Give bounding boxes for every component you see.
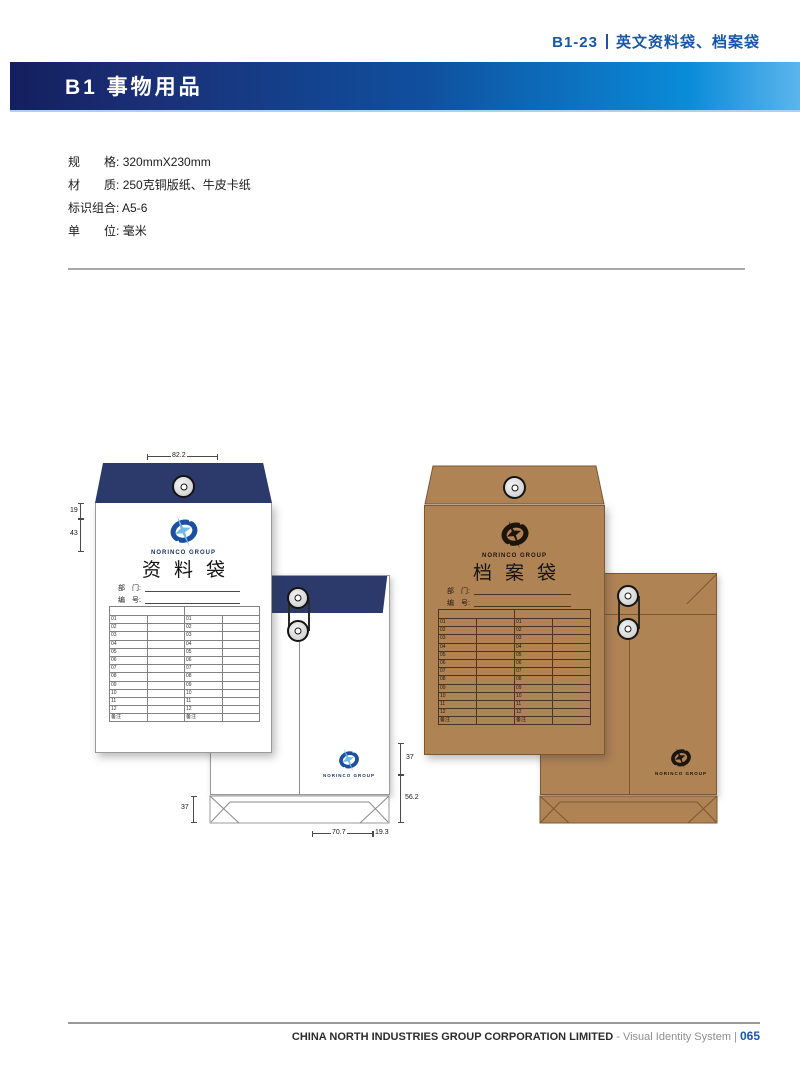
- corner-fold-line: [686, 574, 716, 604]
- index-table-body: 0101020203030404050506060707080809091010…: [110, 616, 260, 722]
- index-table-row: 0404: [439, 643, 591, 651]
- dim-label-bottom-outer: 19.3: [374, 829, 390, 837]
- eyelet-button-icon: [617, 618, 639, 640]
- row-number-cell: 04: [439, 643, 477, 651]
- row-blank-cell: [147, 697, 185, 705]
- row-blank-cell: [553, 668, 591, 676]
- dim-line: [400, 775, 401, 823]
- row-blank-cell: [553, 717, 591, 725]
- index-table-row: 0505: [439, 651, 591, 659]
- eyelet-button-icon: [617, 585, 639, 607]
- field-rule: [145, 591, 240, 592]
- row-number-cell: 07: [185, 665, 223, 673]
- index-table-row: 0101: [439, 619, 591, 627]
- row-blank-cell: [222, 673, 260, 681]
- spec-label: 标识组合:: [68, 197, 119, 220]
- norinco-logo-back: NORINCO GROUP: [314, 748, 384, 778]
- dim-line: [80, 519, 81, 552]
- row-blank-cell: [477, 668, 515, 676]
- row-blank-cell: [477, 717, 515, 725]
- row-blank-cell: [553, 659, 591, 667]
- row-number-cell: 01: [185, 616, 223, 624]
- row-blank-cell: [553, 651, 591, 659]
- kraft-envelope-front: NORINCO GROUP 档案袋 部 门: 编 号: 010102020303…: [424, 465, 605, 755]
- row-blank-cell: [222, 648, 260, 656]
- row-blank-cell: [553, 700, 591, 708]
- row-number-cell: 03: [110, 632, 148, 640]
- row-number-cell: 备注: [110, 714, 148, 722]
- norinco-logo-icon: [334, 748, 364, 773]
- row-blank-cell: [222, 624, 260, 632]
- dim-label-bottom-flap: 37: [180, 804, 190, 812]
- index-table-row: 1111: [439, 700, 591, 708]
- index-table-row: 1212: [439, 709, 591, 717]
- row-blank-cell: [477, 635, 515, 643]
- row-blank-cell: [222, 689, 260, 697]
- row-number-cell: 05: [185, 648, 223, 656]
- spec-row: 材 质: 250克铜版纸、牛皮卡纸: [68, 174, 251, 197]
- dim-label-left-upper: 19: [69, 507, 79, 515]
- spec-value: A5-6: [122, 201, 147, 215]
- brand-text: NORINCO GROUP: [646, 771, 716, 776]
- row-number-cell: 11: [185, 697, 223, 705]
- bottom-gusset-icon: [209, 795, 390, 824]
- row-number-cell: 05: [515, 651, 553, 659]
- row-blank-cell: [147, 706, 185, 714]
- header-separator: [606, 34, 608, 49]
- row-number-cell: 06: [439, 659, 477, 667]
- row-number-cell: 08: [439, 676, 477, 684]
- row-blank-cell: [553, 627, 591, 635]
- row-number-cell: 10: [515, 692, 553, 700]
- spec-value: 毫米: [123, 224, 147, 238]
- row-number-cell: 09: [110, 681, 148, 689]
- row-blank-cell: [553, 692, 591, 700]
- row-number-cell: 04: [110, 640, 148, 648]
- row-number-cell: 10: [439, 692, 477, 700]
- row-number-cell: 12: [515, 709, 553, 717]
- row-blank-cell: [477, 709, 515, 717]
- index-table-row: 0202: [110, 624, 260, 632]
- row-blank-cell: [147, 656, 185, 664]
- row-blank-cell: [477, 619, 515, 627]
- index-table-row: 0808: [439, 676, 591, 684]
- field-rule: [145, 603, 240, 604]
- row-blank-cell: [222, 656, 260, 664]
- row-blank-cell: [553, 635, 591, 643]
- field-rule: [474, 606, 571, 607]
- row-number-cell: 07: [515, 668, 553, 676]
- row-blank-cell: [222, 681, 260, 689]
- spec-row: 规 格: 320mmX230mm: [68, 151, 251, 174]
- dim-label-bottom-inner: 70.7: [331, 829, 347, 837]
- norinco-logo-front: NORINCO GROUP: [96, 515, 271, 556]
- row-number-cell: 11: [515, 700, 553, 708]
- row-blank-cell: [553, 643, 591, 651]
- index-table: 0101020203030404050506060707080809091010…: [109, 606, 260, 722]
- row-number-cell: 09: [185, 681, 223, 689]
- dept-field: 部 门:: [118, 583, 240, 593]
- spec-label: 规 格:: [68, 151, 119, 174]
- row-number-cell: 02: [439, 627, 477, 635]
- index-table-header-row: [439, 610, 591, 619]
- number-field: 编 号:: [118, 595, 240, 605]
- envelope-face: NORINCO GROUP 档案袋 部 门: 编 号: 010102020303…: [424, 505, 605, 755]
- index-table-row: 备注备注: [110, 714, 260, 722]
- dim-line: [80, 503, 81, 519]
- row-blank-cell: [222, 706, 260, 714]
- footer-dash: -: [616, 1031, 620, 1043]
- eyelet-button-icon: [287, 620, 309, 642]
- row-number-cell: 12: [439, 709, 477, 717]
- number-field: 编 号:: [447, 598, 571, 608]
- section-title: B1 事物用品: [65, 71, 203, 101]
- eyelet-button-icon: [503, 476, 526, 499]
- index-table-row: 0606: [439, 659, 591, 667]
- envelope-title: 档案袋: [425, 558, 604, 585]
- index-table-row: 0101: [110, 616, 260, 624]
- field-rule: [474, 594, 571, 595]
- dim-label-right-upper: 37: [405, 754, 415, 762]
- row-number-cell: 09: [439, 684, 477, 692]
- row-number-cell: 04: [515, 643, 553, 651]
- row-blank-cell: [147, 648, 185, 656]
- norinco-logo-front: NORINCO GROUP: [425, 518, 604, 559]
- index-table-row: 0606: [110, 656, 260, 664]
- row-number-cell: 03: [439, 635, 477, 643]
- index-table-row: 0707: [439, 668, 591, 676]
- row-number-cell: 09: [515, 684, 553, 692]
- norinco-logo-icon: [163, 515, 205, 549]
- row-number-cell: 01: [515, 619, 553, 627]
- row-blank-cell: [222, 714, 260, 722]
- bottom-gusset-icon: [539, 795, 718, 824]
- row-blank-cell: [477, 692, 515, 700]
- row-blank-cell: [477, 643, 515, 651]
- row-blank-cell: [147, 689, 185, 697]
- envelope-face: NORINCO GROUP 资料袋 部 门: 编 号: 010102020303…: [95, 503, 272, 753]
- row-blank-cell: [553, 684, 591, 692]
- row-blank-cell: [477, 627, 515, 635]
- brand-text: NORINCO GROUP: [314, 773, 384, 778]
- row-blank-cell: [222, 632, 260, 640]
- number-field-label: 编 号:: [447, 598, 470, 608]
- index-table-row: 0505: [110, 648, 260, 656]
- eyelet-button-icon: [287, 587, 309, 609]
- row-number-cell: 03: [185, 632, 223, 640]
- page-header-code: B1-23: [552, 34, 598, 51]
- dim-line: [193, 796, 194, 823]
- index-table-header-row: [110, 607, 260, 616]
- index-table-row: 备注备注: [439, 717, 591, 725]
- dim-label-top-width: 82.2: [171, 452, 187, 460]
- horizontal-divider: [68, 268, 745, 270]
- dim-label-left-lower: 43: [69, 530, 79, 538]
- index-table-row: 0303: [439, 635, 591, 643]
- section-bar: B1 事物用品: [10, 62, 800, 112]
- row-blank-cell: [477, 700, 515, 708]
- row-number-cell: 05: [110, 648, 148, 656]
- index-table-row: 0808: [110, 673, 260, 681]
- row-blank-cell: [147, 624, 185, 632]
- row-number-cell: 11: [439, 700, 477, 708]
- spec-value: 250克铜版纸、牛皮卡纸: [123, 178, 251, 192]
- spec-label: 材 质:: [68, 174, 119, 197]
- row-number-cell: 02: [515, 627, 553, 635]
- spec-row: 单 位: 毫米: [68, 220, 251, 243]
- row-blank-cell: [147, 640, 185, 648]
- page-header: B1-23英文资料袋、档案袋: [552, 31, 760, 52]
- row-number-cell: 06: [185, 656, 223, 664]
- row-number-cell: 08: [110, 673, 148, 681]
- row-number-cell: 备注: [185, 714, 223, 722]
- row-number-cell: 04: [185, 640, 223, 648]
- index-table-row: 1010: [110, 689, 260, 697]
- dim-line: [400, 743, 401, 775]
- footer-system: Visual Identity System: [623, 1031, 731, 1043]
- row-blank-cell: [222, 640, 260, 648]
- index-table-row: 0909: [439, 684, 591, 692]
- norinco-logo-icon: [494, 518, 536, 552]
- index-table-row: 0909: [110, 681, 260, 689]
- dept-field-label: 部 门:: [118, 583, 141, 593]
- row-blank-cell: [553, 619, 591, 627]
- number-field-label: 编 号:: [118, 595, 141, 605]
- row-number-cell: 10: [185, 689, 223, 697]
- eyelet-button-icon: [172, 475, 195, 498]
- row-number-cell: 02: [110, 624, 148, 632]
- back-seam: [299, 642, 300, 795]
- row-number-cell: 01: [439, 619, 477, 627]
- index-table: 0101020203030404050506060707080809091010…: [438, 609, 591, 725]
- dept-field: 部 门:: [447, 586, 571, 596]
- index-table-row: 1212: [110, 706, 260, 714]
- footer-page-number: 065: [740, 1029, 760, 1043]
- dim-label-right-lower: 56.2: [404, 794, 420, 802]
- index-table-row: 0707: [110, 665, 260, 673]
- row-number-cell: 备注: [439, 717, 477, 725]
- row-number-cell: 10: [110, 689, 148, 697]
- white-envelope-front: NORINCO GROUP 资料袋 部 门: 编 号: 010102020303…: [95, 463, 272, 753]
- index-table-row: 1111: [110, 697, 260, 705]
- row-number-cell: 05: [439, 651, 477, 659]
- spec-value: 320mmX230mm: [123, 155, 211, 169]
- index-table-row: 0303: [110, 632, 260, 640]
- row-blank-cell: [147, 673, 185, 681]
- row-number-cell: 06: [110, 656, 148, 664]
- row-number-cell: 06: [515, 659, 553, 667]
- row-blank-cell: [147, 616, 185, 624]
- row-number-cell: 备注: [515, 717, 553, 725]
- envelope-flap: [95, 463, 272, 503]
- index-table-body: 0101020203030404050506060707080809091010…: [439, 619, 591, 725]
- row-blank-cell: [147, 681, 185, 689]
- row-blank-cell: [222, 697, 260, 705]
- row-number-cell: 07: [110, 665, 148, 673]
- vi-manual-page: B1-23英文资料袋、档案袋 B1 事物用品 规 格: 320mmX230mm …: [0, 0, 800, 1085]
- row-number-cell: 08: [515, 676, 553, 684]
- row-blank-cell: [553, 709, 591, 717]
- footer: CHINA NORTH INDUSTRIES GROUP CORPORATION…: [292, 1029, 760, 1043]
- row-number-cell: 03: [515, 635, 553, 643]
- envelope-title: 资料袋: [96, 555, 271, 582]
- row-blank-cell: [147, 665, 185, 673]
- row-blank-cell: [477, 659, 515, 667]
- spec-label: 单 位:: [68, 220, 119, 243]
- specs-block: 规 格: 320mmX230mm 材 质: 250克铜版纸、牛皮卡纸 标识组合:…: [68, 151, 251, 243]
- row-number-cell: 12: [185, 706, 223, 714]
- norinco-logo-back: NORINCO GROUP: [646, 746, 716, 776]
- footer-separator: |: [734, 1031, 737, 1043]
- row-blank-cell: [222, 665, 260, 673]
- dept-field-label: 部 门:: [447, 586, 470, 596]
- row-blank-cell: [477, 676, 515, 684]
- row-number-cell: 07: [439, 668, 477, 676]
- index-table-row: 0404: [110, 640, 260, 648]
- row-number-cell: 02: [185, 624, 223, 632]
- norinco-logo-icon: [666, 746, 696, 771]
- row-blank-cell: [477, 651, 515, 659]
- row-blank-cell: [553, 676, 591, 684]
- spec-row: 标识组合: A5-6: [68, 197, 251, 220]
- row-blank-cell: [477, 684, 515, 692]
- row-blank-cell: [147, 714, 185, 722]
- index-table-row: 0202: [439, 627, 591, 635]
- row-number-cell: 08: [185, 673, 223, 681]
- footer-rule: [68, 1022, 760, 1024]
- row-number-cell: 11: [110, 697, 148, 705]
- row-blank-cell: [147, 632, 185, 640]
- page-header-title: 英文资料袋、档案袋: [616, 34, 760, 51]
- row-number-cell: 01: [110, 616, 148, 624]
- footer-company: CHINA NORTH INDUSTRIES GROUP CORPORATION…: [292, 1031, 613, 1043]
- row-number-cell: 12: [110, 706, 148, 714]
- row-blank-cell: [222, 616, 260, 624]
- index-table-row: 1010: [439, 692, 591, 700]
- back-seam: [629, 640, 630, 795]
